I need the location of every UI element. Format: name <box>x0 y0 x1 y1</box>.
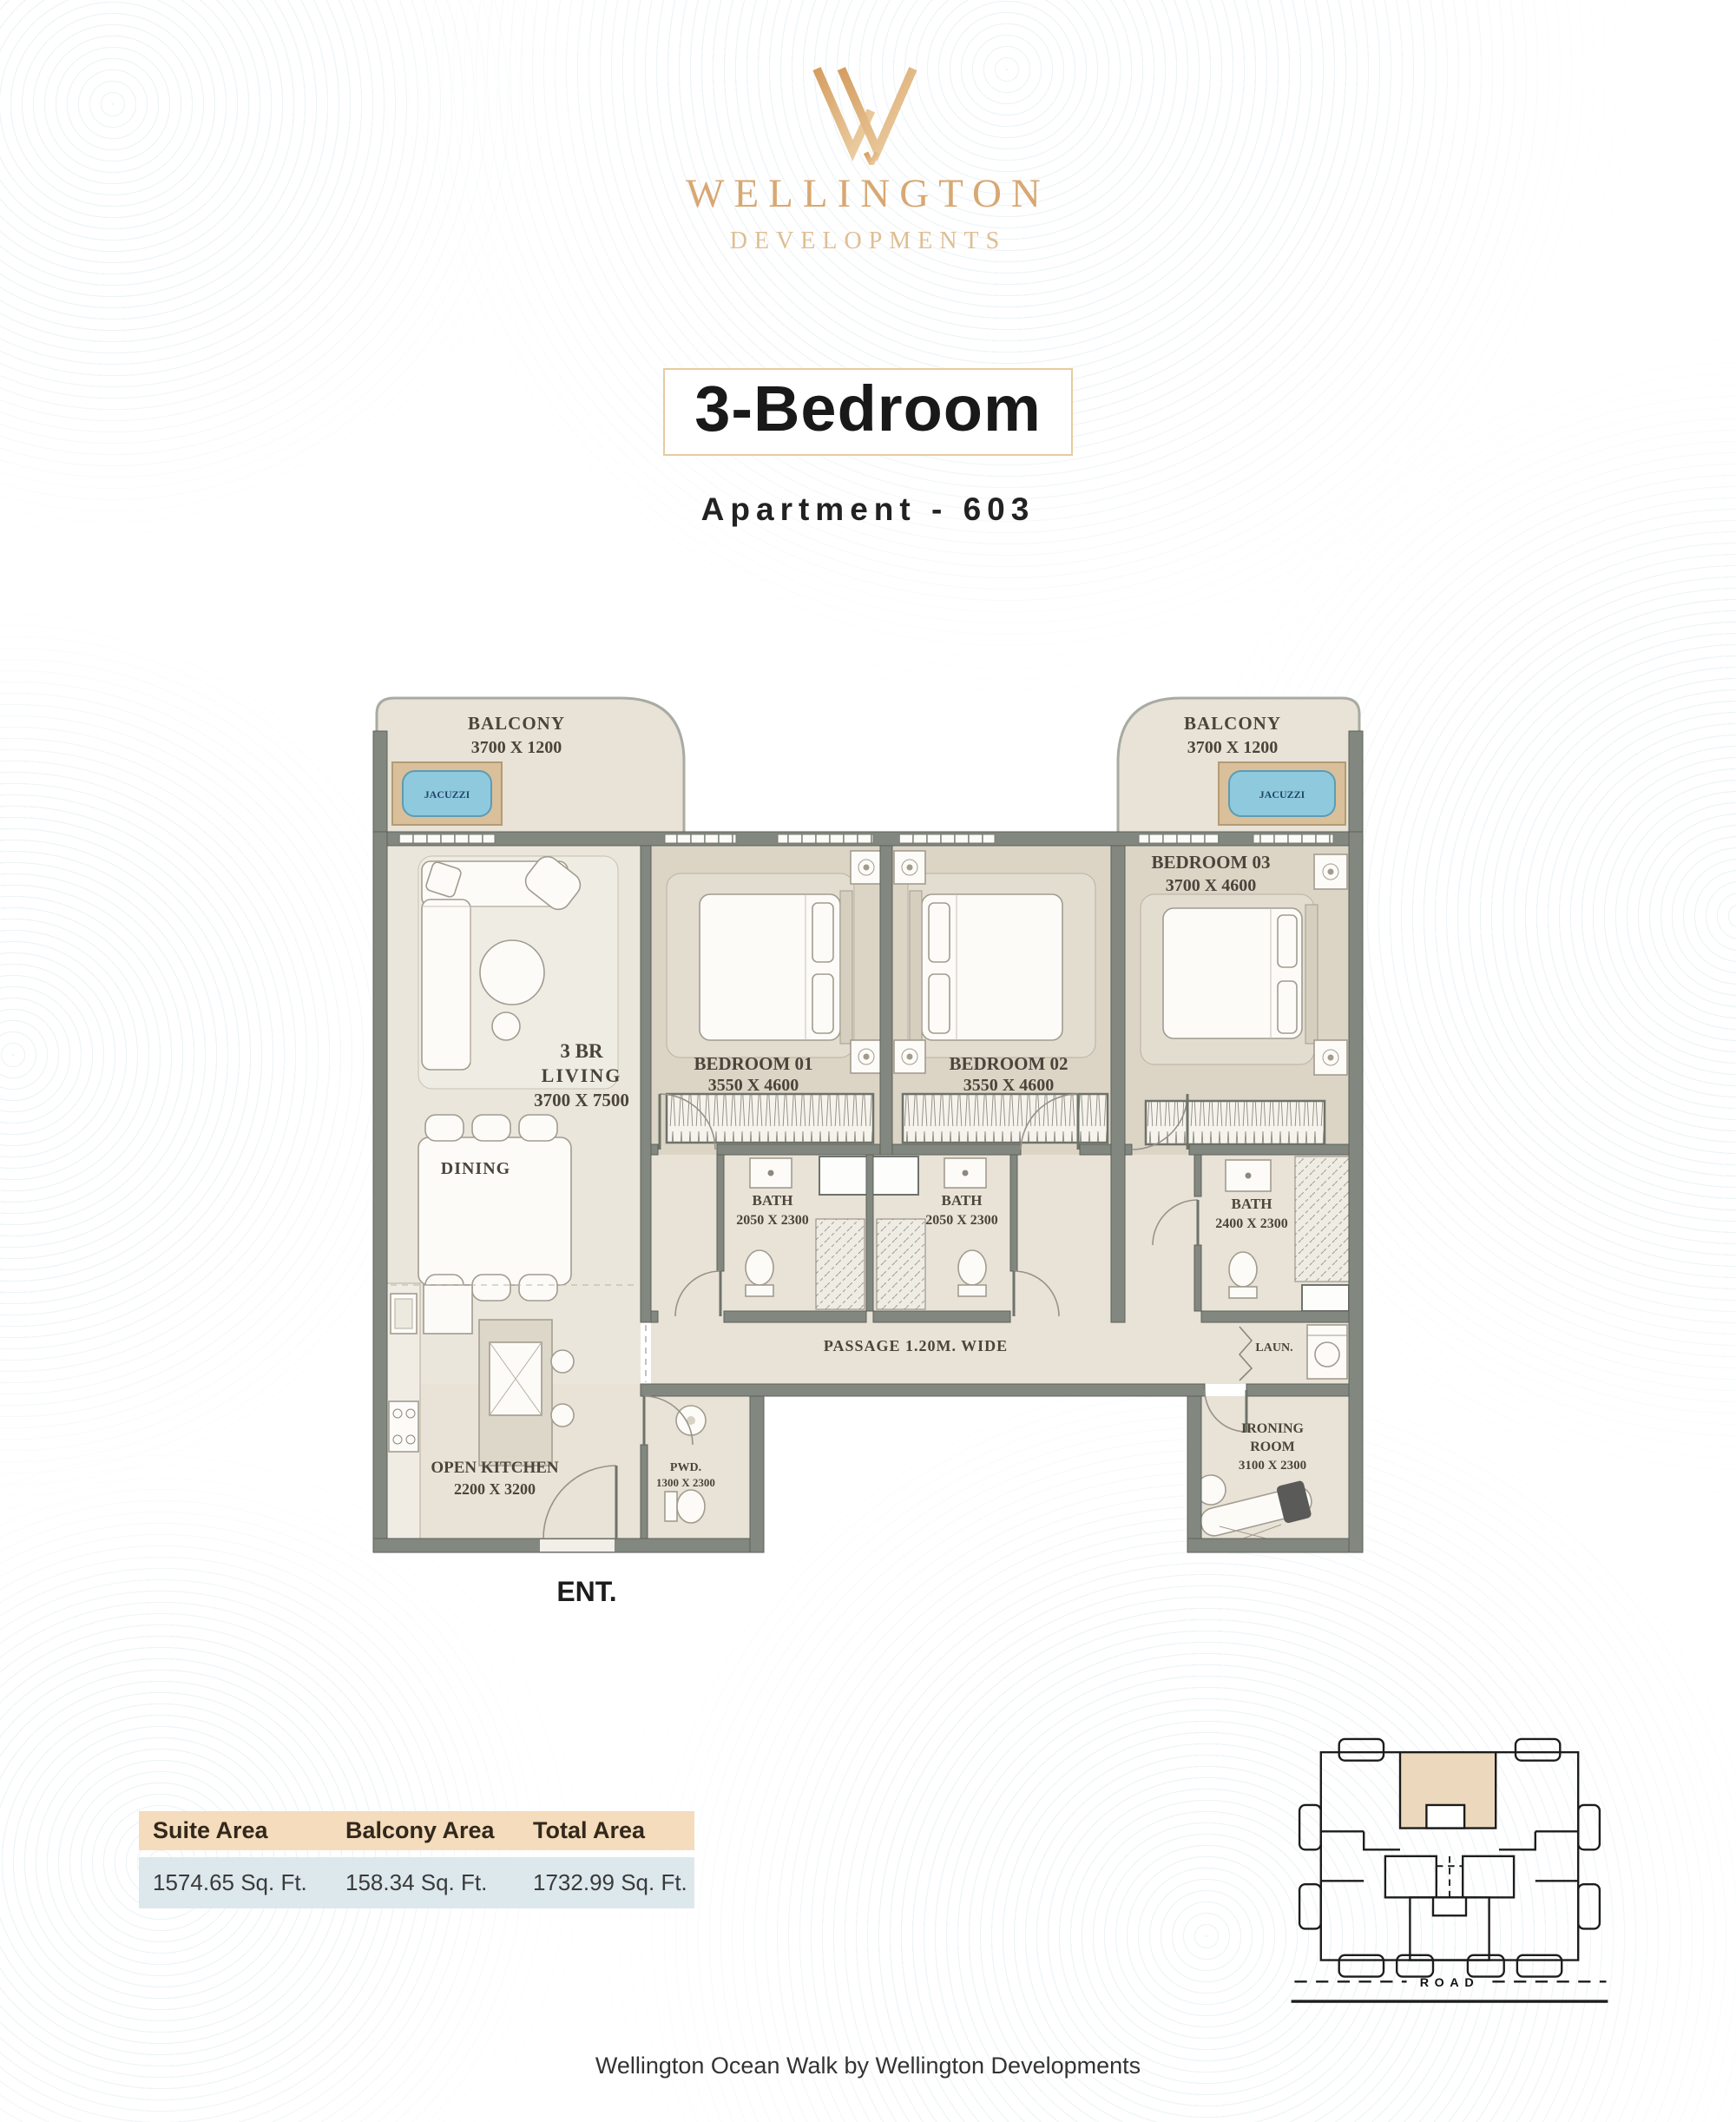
ironing-label-1: IRONING <box>1241 1421 1305 1436</box>
suite-area-value: 1574.65 Sq. Ft. <box>139 1857 332 1908</box>
brand-tagline: DEVELOPMENTS <box>0 227 1736 255</box>
kitchen-dims: 2200 X 3200 <box>454 1480 536 1498</box>
apartment-number: Apartment - 603 <box>0 491 1736 528</box>
living-dims: 3700 X 7500 <box>534 1090 629 1110</box>
plan-title: 3-Bedroom <box>663 368 1073 456</box>
bedroom1-label: BEDROOM 01 <box>694 1053 812 1074</box>
living-label-2: LIVING <box>542 1064 622 1086</box>
bath2-label: BATH <box>942 1192 983 1209</box>
balcony-right-dims: 3700 X 1200 <box>1187 738 1278 757</box>
jacuzzi-right-label: JACUZZI <box>1259 788 1305 801</box>
jacuzzi-left-label: JACUZZI <box>424 788 470 801</box>
total-area-value: 1732.99 Sq. Ft. <box>519 1857 694 1908</box>
balcony-left-label: BALCONY <box>468 713 565 734</box>
kitchen-label: OPEN KITCHEN <box>431 1459 559 1477</box>
area-table: Suite Area Balcony Area Total Area 1574.… <box>139 1811 694 1908</box>
balcony-area-value: 158.34 Sq. Ft. <box>332 1857 519 1908</box>
living-label-1: 3 BR <box>560 1040 603 1062</box>
jacuzzi-right: JACUZZI <box>1219 762 1345 825</box>
suite-area-header: Suite Area <box>139 1811 332 1850</box>
bath3-dims: 2400 X 2300 <box>1215 1216 1288 1231</box>
brochure-page: WELLINGTON DEVELOPMENTS 3-Bedroom Apartm… <box>0 0 1736 2122</box>
bath1-dims: 2050 X 2300 <box>736 1213 809 1228</box>
jacuzzi-left: JACUZZI <box>392 762 502 825</box>
dining-label: DINING <box>441 1159 510 1178</box>
laundry-label: LAUN. <box>1255 1341 1292 1354</box>
footer-text: Wellington Ocean Walk by Wellington Deve… <box>0 2053 1736 2079</box>
brand-monogram-icon <box>786 63 950 165</box>
area-table-values: 1574.65 Sq. Ft. 158.34 Sq. Ft. 1732.99 S… <box>139 1857 694 1908</box>
bath2-dims: 2050 X 2300 <box>925 1213 998 1228</box>
bedroom2-furniture <box>894 851 1108 1143</box>
floor-plan: JACUZZI JACUZZI <box>365 675 1397 1631</box>
passage-label: PASSAGE 1.20M. WIDE <box>824 1337 1008 1354</box>
bedroom3-label: BEDROOM 03 <box>1151 852 1270 873</box>
entrance-label: ENT. <box>556 1576 616 1607</box>
ironing-dims: 3100 X 2300 <box>1239 1459 1306 1473</box>
balcony-right-label: BALCONY <box>1184 713 1281 734</box>
road-label: ROAD <box>1420 1976 1480 1990</box>
pwd-dims: 1300 X 2300 <box>656 1476 715 1489</box>
ironing-label-2: ROOM <box>1250 1440 1295 1454</box>
key-plan: ROAD <box>1285 1726 1614 2014</box>
brand-name: WELLINGTON <box>0 170 1736 217</box>
pwd-label: PWD. <box>670 1461 701 1474</box>
bath1-label: BATH <box>753 1192 793 1209</box>
balcony-left-dims: 3700 X 1200 <box>471 738 562 757</box>
area-table-header: Suite Area Balcony Area Total Area <box>139 1811 694 1850</box>
balcony-area-header: Balcony Area <box>332 1811 519 1850</box>
bedroom3-dims: 3700 X 4600 <box>1166 876 1256 895</box>
bath3-label: BATH <box>1232 1196 1272 1212</box>
bedroom1-dims: 3550 X 4600 <box>708 1076 799 1095</box>
bedroom1-furniture <box>667 851 882 1143</box>
plan-title-wrap: 3-Bedroom <box>0 368 1736 456</box>
total-area-header: Total Area <box>519 1811 694 1850</box>
bedroom2-label: BEDROOM 02 <box>949 1053 1068 1074</box>
bedroom2-dims: 3550 X 4600 <box>963 1076 1054 1095</box>
